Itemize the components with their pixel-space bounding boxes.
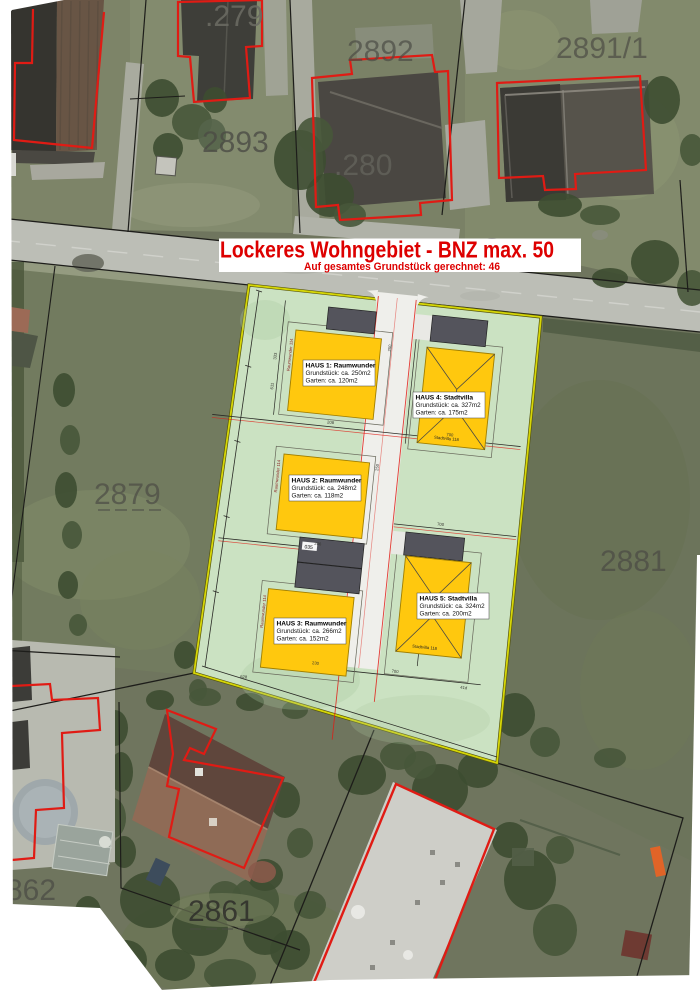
svg-text:Lockeres Wohngebiet - BNZ max.: Lockeres Wohngebiet - BNZ max. 50 — [220, 237, 554, 263]
svg-text:2892: 2892 — [347, 35, 414, 68]
svg-text:Grundstück: ca. 266m2: Grundstück: ca. 266m2 — [277, 628, 343, 635]
svg-text:700: 700 — [391, 668, 399, 674]
svg-text:.280: .280 — [334, 149, 392, 182]
svg-text:208: 208 — [327, 419, 335, 425]
svg-text:2879: 2879 — [94, 478, 161, 511]
svg-text:HAUS 1: Raumwunder: HAUS 1: Raumwunder — [306, 363, 376, 370]
svg-text:Garten: ca. 175m2: Garten: ca. 175m2 — [416, 410, 469, 417]
svg-text:Auf gesamtes Grundstück gerech: Auf gesamtes Grundstück gerechnet: 46 — [304, 261, 500, 273]
svg-text:230: 230 — [312, 660, 320, 666]
svg-text:2893: 2893 — [202, 126, 269, 159]
svg-text:.279: .279 — [205, 0, 263, 33]
svg-text:2861: 2861 — [188, 895, 255, 928]
svg-text:HAUS 4: Stadtvilla: HAUS 4: Stadtvilla — [416, 395, 474, 402]
svg-text:Garten: ca. 118m2: Garten: ca. 118m2 — [292, 493, 344, 500]
svg-text:206: 206 — [314, 541, 322, 547]
svg-text:Garten: ca. 152m2: Garten: ca. 152m2 — [277, 636, 330, 643]
svg-text:HAUS 5: Stadtvilla: HAUS 5: Stadtvilla — [420, 596, 478, 603]
svg-text:700: 700 — [446, 432, 454, 438]
svg-text:333: 333 — [272, 352, 278, 360]
svg-text:Grundstück: ca. 248m2: Grundstück: ca. 248m2 — [292, 485, 358, 492]
svg-text:250: 250 — [387, 344, 393, 352]
svg-text:Garten: ca. 200m2: Garten: ca. 200m2 — [420, 611, 473, 618]
svg-text:2881: 2881 — [600, 545, 667, 578]
svg-text:Grundstück: ca. 327m2: Grundstück: ca. 327m2 — [416, 402, 482, 409]
svg-text:Grundstück: ca. 324m2: Grundstück: ca. 324m2 — [420, 603, 486, 610]
svg-text:035: 035 — [304, 544, 313, 551]
svg-text:HAUS 2: Raumwunder: HAUS 2: Raumwunder — [292, 478, 362, 485]
svg-text:41d: 41d — [460, 685, 468, 691]
svg-text:862: 862 — [6, 874, 56, 907]
svg-text:2891/1: 2891/1 — [556, 32, 648, 65]
svg-text:250: 250 — [374, 463, 380, 471]
svg-text:Grundstück: ca. 250m2: Grundstück: ca. 250m2 — [306, 370, 372, 377]
svg-text:611: 611 — [269, 382, 275, 390]
svg-text:700: 700 — [437, 521, 445, 527]
svg-text:HAUS 3: Raumwunder: HAUS 3: Raumwunder — [277, 621, 347, 628]
svg-text:Garten: ca. 120m2: Garten: ca. 120m2 — [306, 378, 359, 385]
